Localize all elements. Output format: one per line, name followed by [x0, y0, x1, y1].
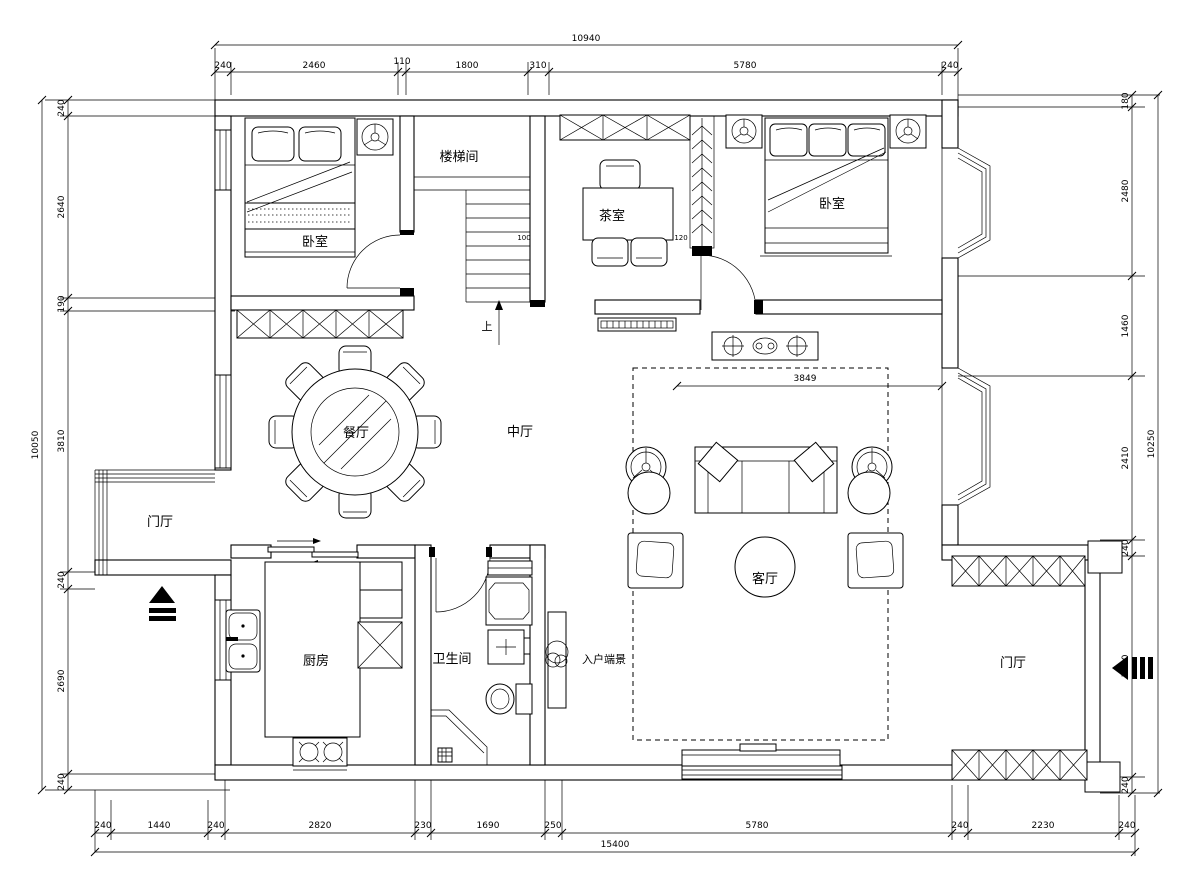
dim-right-seg: 1460 [1121, 314, 1131, 337]
dim-bottom-seg: 1690 [477, 821, 500, 831]
room-label-entry-view: 入户端景 [582, 652, 626, 666]
room-label-mid-hall: 中厅 [507, 425, 533, 440]
room-label-living: 客厅 [752, 571, 778, 587]
dimension-chain-left: 240 2640 190 3810 240 2690 240 10050 [31, 96, 235, 794]
dimension-chain-top: 10940 240 2460 110 1800 310 5780 240 [211, 34, 962, 100]
bedroom-right-furniture [726, 115, 926, 256]
dim-top-seg: 5780 [734, 61, 757, 71]
dim-bottom-total: 15400 [601, 840, 630, 850]
stairs-up-label: 上 [482, 320, 493, 333]
closet-bedroom-left [237, 310, 403, 338]
room-label-dining: 餐厅 [343, 425, 369, 441]
kitchen-island [265, 562, 360, 737]
room-label-bathroom: 卫生间 [432, 652, 471, 667]
dim-bottom-seg: 250 [544, 821, 561, 831]
closet-foyer-bottom [952, 750, 1087, 780]
dim-right-seg: 2410 [1121, 446, 1131, 469]
dim-right-seg: 2480 [1121, 179, 1131, 202]
room-label-kitchen: 厨房 [303, 653, 329, 669]
room-label-foyer-left: 门厅 [147, 515, 173, 530]
dim-top-total: 10940 [572, 34, 601, 44]
room-label-foyer-right: 门厅 [1000, 656, 1026, 671]
room-label-bedroom-right: 卧室 [819, 196, 845, 212]
dim-left-seg: 2640 [57, 195, 67, 218]
dim-left-seg: 3810 [57, 429, 67, 452]
dim-left-seg: 2690 [57, 669, 67, 692]
coffee-table [735, 537, 795, 597]
dim-top-seg: 110 [393, 57, 410, 67]
dim-bottom-seg: 240 [94, 821, 111, 831]
dim-top-seg: 1800 [456, 61, 479, 71]
dim-bottom-seg: 1440 [148, 821, 171, 831]
stove [293, 738, 347, 770]
dim-left-seg: 240 [57, 99, 67, 116]
room-label-tea-room: 茶室 [599, 208, 625, 224]
console-table [712, 332, 818, 360]
cabinet-top-center [560, 115, 690, 140]
nightstand-lamp-icon [726, 115, 762, 148]
tv-cabinet [682, 744, 840, 766]
side-table-plant-icon [626, 447, 670, 514]
floor-plan-canvas: 10940 240 2460 110 1800 310 5780 240 240… [0, 0, 1200, 880]
kitchen-cabinets [358, 562, 402, 668]
dim-bottom-seg: 230 [414, 821, 431, 831]
entry-arrow-left-icon [149, 586, 176, 621]
closet-foyer-top [952, 556, 1085, 586]
dim-top-seg: 240 [214, 61, 231, 71]
dim-left-seg: 190 [57, 295, 67, 312]
vanity-counter [486, 577, 532, 625]
armchair [848, 533, 903, 588]
tea-room-furniture [583, 160, 673, 266]
dim-living-width: 3849 [794, 374, 817, 384]
dim-living-width-line: 3849 [673, 374, 946, 390]
toilet [486, 684, 532, 714]
dim-bottom-seg: 240 [207, 821, 224, 831]
dim-top-seg: 2460 [303, 61, 326, 71]
dim-left-seg: 240 [57, 773, 67, 790]
side-table-plant-icon [848, 447, 892, 514]
dim-bottom-seg: 2230 [1032, 821, 1055, 831]
dim-top-seg: 240 [941, 61, 958, 71]
stairwell: 上 100 [414, 177, 531, 345]
dimension-chain-right: 180 2480 1460 2410 240 3240 240 10250 [958, 91, 1162, 797]
dim-bottom-seg: 2820 [309, 821, 332, 831]
floor-drain-icon [438, 748, 452, 762]
dim-stair-wall: 100 [517, 234, 530, 242]
dim-screen-wall: 120 [674, 234, 687, 242]
dim-right-seg: 180 [1121, 92, 1131, 109]
dim-left-total: 10050 [31, 430, 41, 459]
ceiling-lamp-icon [357, 119, 393, 155]
floor-plan-drawing: 10940 240 2460 110 1800 310 5780 240 240… [0, 0, 1200, 880]
dim-bottom-seg: 240 [951, 821, 968, 831]
dim-top-seg: 310 [529, 61, 546, 71]
entry-console [546, 612, 568, 708]
kitchen-sink [226, 610, 260, 672]
entry-arrow-right-icon [1112, 656, 1153, 680]
shower-base [488, 630, 530, 664]
dim-bottom-seg: 5780 [746, 821, 769, 831]
armchair [628, 533, 683, 588]
dim-left-seg: 240 [57, 571, 67, 588]
dimension-chain-bottom: 240 1440 240 2820 230 1690 250 5780 240 … [91, 770, 1139, 856]
window-sill-cabinet [598, 318, 676, 331]
dim-right-seg: 240 [1121, 776, 1131, 793]
nightstand-lamp-icon [890, 115, 926, 148]
room-label-stairwell: 楼梯间 [439, 150, 478, 165]
dim-bottom-seg: 240 [1118, 821, 1135, 831]
room-label-bedroom-left: 卧室 [302, 234, 328, 250]
dim-right-total: 10250 [1147, 429, 1157, 458]
